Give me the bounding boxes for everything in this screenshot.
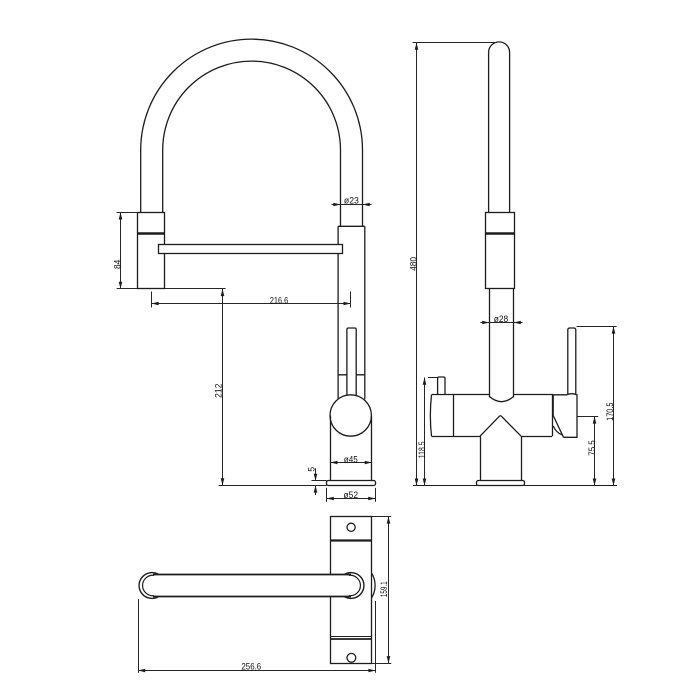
svg-text:170.5: 170.5	[605, 402, 615, 420]
svg-text:212: 212	[213, 383, 223, 398]
svg-text:ø28: ø28	[494, 314, 509, 324]
svg-text:480: 480	[409, 257, 419, 271]
svg-text:118.5: 118.5	[417, 441, 427, 458]
svg-text:ø52: ø52	[344, 490, 359, 500]
svg-text:ø23: ø23	[344, 195, 359, 205]
svg-text:256.6: 256.6	[241, 661, 261, 671]
svg-text:5: 5	[307, 467, 317, 472]
svg-text:216.6: 216.6	[270, 296, 289, 306]
svg-text:159.1: 159.1	[379, 581, 389, 597]
svg-text:75.5: 75.5	[587, 440, 597, 455]
svg-text:84: 84	[112, 260, 122, 269]
svg-text:ø45: ø45	[344, 455, 358, 465]
